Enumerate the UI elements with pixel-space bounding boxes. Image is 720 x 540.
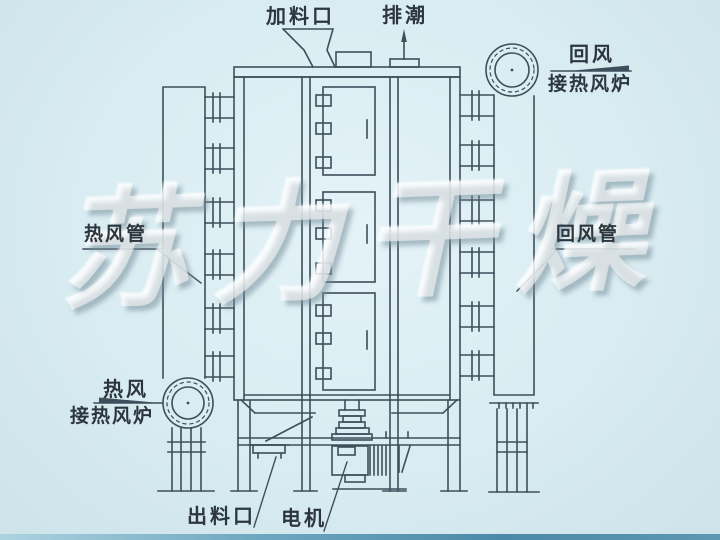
label-feed-port: 加料口 (266, 6, 335, 28)
return-air-arrow-icon (568, 66, 629, 72)
left-connector-stubs (205, 93, 234, 381)
label-return-air: 回风 (569, 44, 615, 66)
label-return-connect: 接热风炉 (548, 75, 632, 96)
right-connector-stubs (460, 91, 494, 380)
exhaust-arrow-icon (401, 29, 407, 42)
photo-edge-strip (0, 534, 720, 540)
machine-body (234, 67, 460, 400)
hot-air-inlet-fan (163, 378, 213, 428)
label-discharge-port: 出料口 (187, 506, 256, 528)
label-motor: 电机 (281, 508, 327, 530)
exhaust-vent (390, 29, 419, 67)
feed-hopper (283, 29, 335, 67)
hot-air-pipe (163, 87, 205, 378)
label-moisture-exhaust: 排潮 (382, 5, 428, 27)
label-return-air-pipe: 回风管 (556, 225, 619, 246)
door-middle (316, 192, 375, 282)
leader-lines (83, 66, 634, 532)
gear-stack (332, 400, 372, 440)
diagram-photo: 苏力干燥 加料口 排潮 回风 接热风炉 热风管 回风管 热风 接热风炉 出料口 … (0, 0, 720, 540)
door-bottom (316, 293, 375, 390)
door-top (316, 87, 375, 175)
left-pedestal (158, 428, 214, 491)
top-hatch (336, 52, 371, 67)
discharge-tray (249, 445, 289, 458)
right-pedestal (489, 409, 539, 492)
return-air-fan (486, 44, 538, 96)
return-air-pipe (490, 96, 538, 408)
label-hot-air: 热风 (103, 379, 149, 401)
label-hot-connect: 接热风炉 (70, 407, 154, 428)
label-hot-air-pipe: 热风管 (84, 225, 147, 246)
